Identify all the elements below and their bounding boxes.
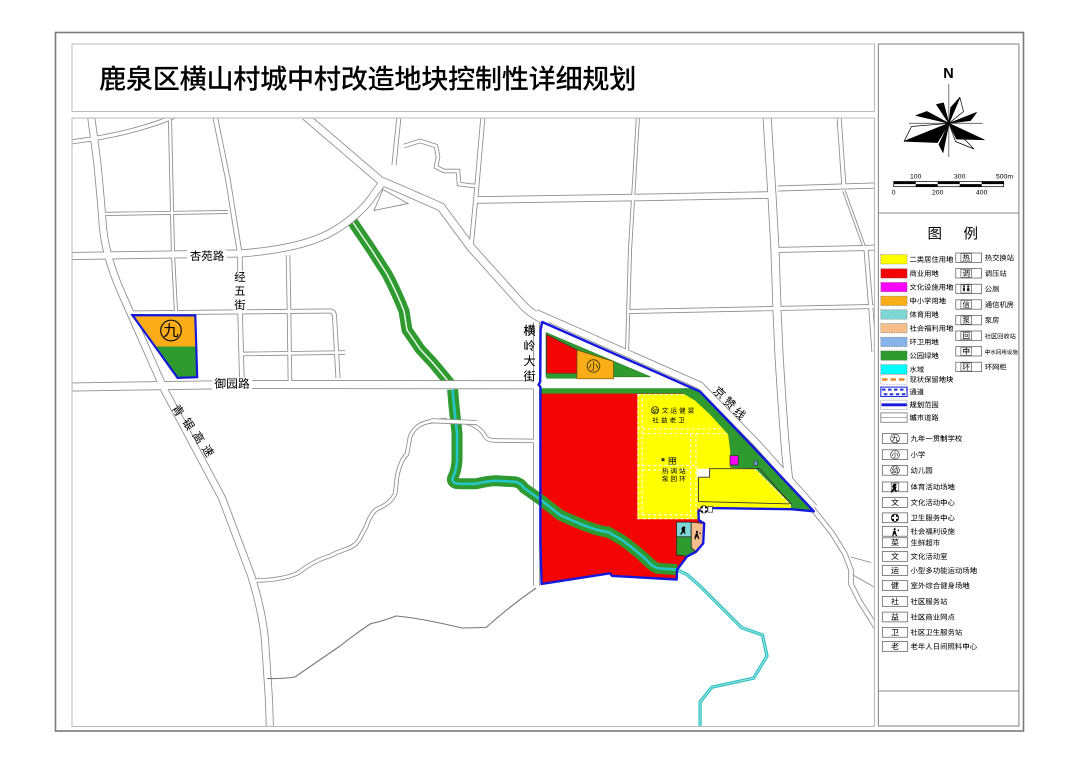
svg-text:N: N — [943, 66, 953, 82]
svg-text:0: 0 — [892, 190, 896, 197]
svg-text:200: 200 — [932, 190, 944, 197]
svg-text:300: 300 — [954, 174, 966, 181]
svg-text:400: 400 — [976, 190, 988, 197]
svg-text:100: 100 — [910, 174, 922, 181]
svg-text:500m: 500m — [996, 174, 1013, 181]
